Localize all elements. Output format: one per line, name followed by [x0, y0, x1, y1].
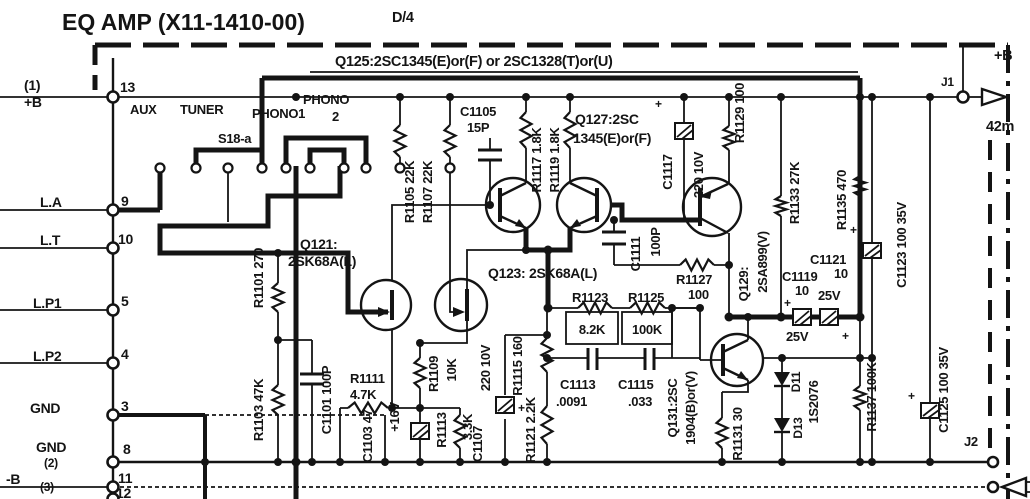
- c1101-label: C1101 100P: [319, 365, 334, 434]
- r1133-label: R1133 27K: [787, 161, 802, 224]
- j1-label: J1: [941, 75, 954, 89]
- r1131-label: R1131 30: [730, 407, 745, 460]
- switch-contact: [446, 164, 455, 173]
- r1131-symbol: [717, 418, 728, 448]
- source-phono2: PHONO: [303, 92, 349, 107]
- q125-emitter-arrow: [515, 219, 526, 228]
- pin13-num: 13: [120, 79, 135, 95]
- r1109-label: R1109: [426, 356, 441, 392]
- q123-gate-wire: [450, 173, 453, 312]
- pin5-label: L.P1: [33, 295, 62, 311]
- r1113-value: 3.3K: [460, 413, 475, 440]
- c1117-value: 220 10V: [691, 151, 706, 198]
- d11-label: D11: [789, 371, 803, 392]
- r1125-label: R1125: [628, 290, 664, 305]
- r1121-symbol: [542, 406, 553, 444]
- current-label: 42m: [986, 119, 1014, 135]
- output-arrow-icon: [1002, 478, 1026, 496]
- r1123-label: R1123: [572, 290, 608, 305]
- c1107-value: 220 10V: [478, 344, 493, 391]
- switch-contact: [306, 164, 315, 173]
- c1117-label: C1117: [660, 154, 675, 189]
- q129-label1: Q129:: [736, 267, 751, 302]
- c1121-symbol: [820, 309, 838, 325]
- switch-contact: [192, 164, 201, 173]
- pin8-num: 8: [123, 441, 131, 457]
- switch-contact: [362, 164, 371, 173]
- r1121-label: R1121 2.2K: [523, 396, 538, 463]
- switch-contact: [258, 164, 267, 173]
- schematic-page: EQ AMP (X11-1410-00) D/4 Q125:2SC1345(E)…: [0, 0, 1030, 499]
- r1115-label: R1115 160: [510, 336, 525, 396]
- r1109-value: 10K: [444, 358, 459, 382]
- c1105-label: C1105: [460, 104, 496, 119]
- r1123-value: 8.2K: [579, 322, 606, 337]
- source-phono2-num: 2: [332, 109, 339, 124]
- r1107-label: R1107 22K: [420, 160, 435, 223]
- j1-terminal: [958, 92, 969, 103]
- c1111-symbol: [602, 232, 626, 244]
- r1105-symbol: [395, 125, 406, 157]
- c1121-rating: 25V: [818, 288, 841, 303]
- pin9-label: L.A: [40, 194, 62, 210]
- r1127-symbol: [680, 260, 714, 271]
- r1119-label: R1119 1.8K: [547, 127, 562, 193]
- c1121-plus: +: [842, 329, 849, 343]
- q127-emitter-arrow: [570, 219, 581, 228]
- pin11-num: 11: [118, 470, 133, 486]
- c1115-symbol: [645, 348, 654, 370]
- j2-terminal: [988, 457, 998, 467]
- c1111-value: 100P: [648, 227, 663, 257]
- d11-symbol: [774, 372, 790, 386]
- c1125-label: C1125 100 35V: [936, 347, 951, 433]
- q123-gate-arrow: [453, 307, 465, 317]
- pin9-num: 9: [121, 193, 129, 209]
- q121-label2: 2SK68A(L): [288, 253, 356, 269]
- r1127-value: 100: [688, 287, 709, 302]
- c1119-value: 10: [795, 283, 809, 298]
- q131-base-wire: [672, 308, 723, 360]
- r1129-label: R1129 100: [732, 83, 747, 143]
- switch-contact: [156, 164, 165, 173]
- pin4-label: L.P2: [33, 348, 62, 364]
- q131-label1: Q131:2SC: [665, 378, 680, 438]
- r1127-label: R1127: [676, 272, 712, 287]
- r1103-symbol: [273, 385, 284, 415]
- q125-legs: [500, 183, 526, 228]
- pin3-num: 3: [121, 398, 129, 414]
- c1103-symbol: [411, 423, 429, 439]
- r1101-symbol: [273, 283, 284, 312]
- q123-transistor: [435, 279, 487, 331]
- pin8-label2: (2): [44, 456, 58, 470]
- switch-contact: [340, 164, 349, 173]
- pin11-label: -B: [6, 471, 20, 487]
- pin8-label: GND: [36, 439, 66, 455]
- pin13-label2: +B: [24, 94, 42, 110]
- c1123-symbol: [863, 243, 881, 258]
- c1105-value: 15P: [467, 120, 490, 135]
- c1103-label: C1103 47: [360, 409, 375, 462]
- r1111-value: 4.7K: [350, 387, 377, 402]
- signal-staircase: [160, 166, 388, 312]
- c1123-label: C1123 100 35V: [894, 202, 909, 288]
- c1113-value: .0091: [556, 394, 587, 409]
- schematic-title: EQ AMP (X11-1410-00): [62, 9, 305, 35]
- source-phono1: PHONO1: [252, 106, 305, 121]
- r1107-symbol: [445, 125, 456, 157]
- pin11-label2: (3): [40, 480, 54, 494]
- c1119-plus: +: [784, 296, 791, 310]
- r1117-label: R1117 1.8K: [529, 127, 544, 193]
- switch-contact: [282, 164, 291, 173]
- r1105-label: R1105 22K: [402, 160, 417, 223]
- q123-label: Q123: 2SK68A(L): [488, 265, 597, 281]
- c1121-value: 10: [834, 266, 848, 281]
- c1115-label: C1115: [618, 377, 653, 392]
- pin3-label: GND: [30, 400, 60, 416]
- switch-bracket-3: [310, 150, 344, 166]
- c1119-symbol: [793, 309, 811, 325]
- pin4-num: 4: [121, 346, 129, 362]
- c1117-plus: +: [655, 97, 662, 111]
- d13-symbol: [774, 418, 790, 432]
- r1111-wires: [340, 408, 420, 462]
- pin5-num: 5: [121, 293, 129, 309]
- c1113-label: C1113: [560, 377, 595, 392]
- c1111-label: C1111: [628, 237, 643, 272]
- c1107-plus: +: [518, 401, 525, 415]
- eq-amp-schematic: EQ AMP (X11-1410-00) D/4 Q125:2SC1345(E)…: [0, 0, 1030, 499]
- q121-label1: Q121:: [300, 236, 337, 252]
- c1115-value: .033: [628, 394, 652, 409]
- q127-label1: Q127:2SC: [575, 111, 639, 127]
- q127-legs: [570, 183, 597, 228]
- plus-b-arrow-icon: [982, 89, 1006, 105]
- source-tuner: TUNER: [180, 102, 224, 117]
- r1101-label: R1101 270: [251, 248, 266, 308]
- pin13-label1: (1): [24, 77, 40, 93]
- r1133-symbol: [776, 196, 787, 216]
- q127-label2: 1345(E)or(F): [573, 130, 651, 146]
- r1113-label: R1113: [434, 412, 449, 447]
- q121-gate-arrow: [378, 307, 390, 317]
- plus-b-out-label: +B: [994, 48, 1012, 64]
- switch-contact: [224, 164, 233, 173]
- r1135-label: R1135 470: [834, 170, 849, 230]
- transistor-note: Q125:2SC1345(E)or(F) or 2SC1328(T)or(U): [335, 54, 613, 70]
- r1125-value: 100K: [632, 322, 663, 337]
- q127-transistor: [557, 178, 611, 232]
- diode-value: 1S2076: [806, 380, 821, 423]
- c1123-plus: +: [850, 223, 857, 237]
- r1111-label: R1111: [350, 371, 385, 386]
- d13-label: D13: [791, 417, 805, 439]
- c1117-symbol: [675, 123, 693, 139]
- switch-name: S18-a: [218, 131, 252, 146]
- schematic-rev: D/4: [392, 10, 414, 26]
- q131-emitter-arrow: [737, 371, 748, 380]
- pin10-label: L.T: [40, 232, 61, 248]
- q121-transistor: [361, 280, 411, 330]
- r1103-label: R1103 47K: [251, 378, 266, 441]
- c1105-symbol: [478, 150, 502, 160]
- j2-label: J2: [964, 434, 978, 449]
- j2-terminal-2: [988, 482, 998, 492]
- q131-legs: [723, 340, 748, 380]
- c1107-symbol: [496, 397, 514, 413]
- c1119-rating: 25V: [786, 329, 809, 344]
- c1113-symbol: [588, 348, 597, 370]
- c1119-label: C1119: [782, 269, 817, 284]
- q131-label2: 1904(B)or(V): [683, 371, 698, 445]
- c1125-plus: +: [908, 389, 915, 403]
- c1121-label: C1121: [810, 252, 846, 267]
- pin10-num: 10: [118, 231, 133, 247]
- q129-label2: 2SA899(V): [755, 231, 770, 293]
- source-aux: AUX: [130, 102, 157, 117]
- r1109-symbol: [415, 358, 426, 388]
